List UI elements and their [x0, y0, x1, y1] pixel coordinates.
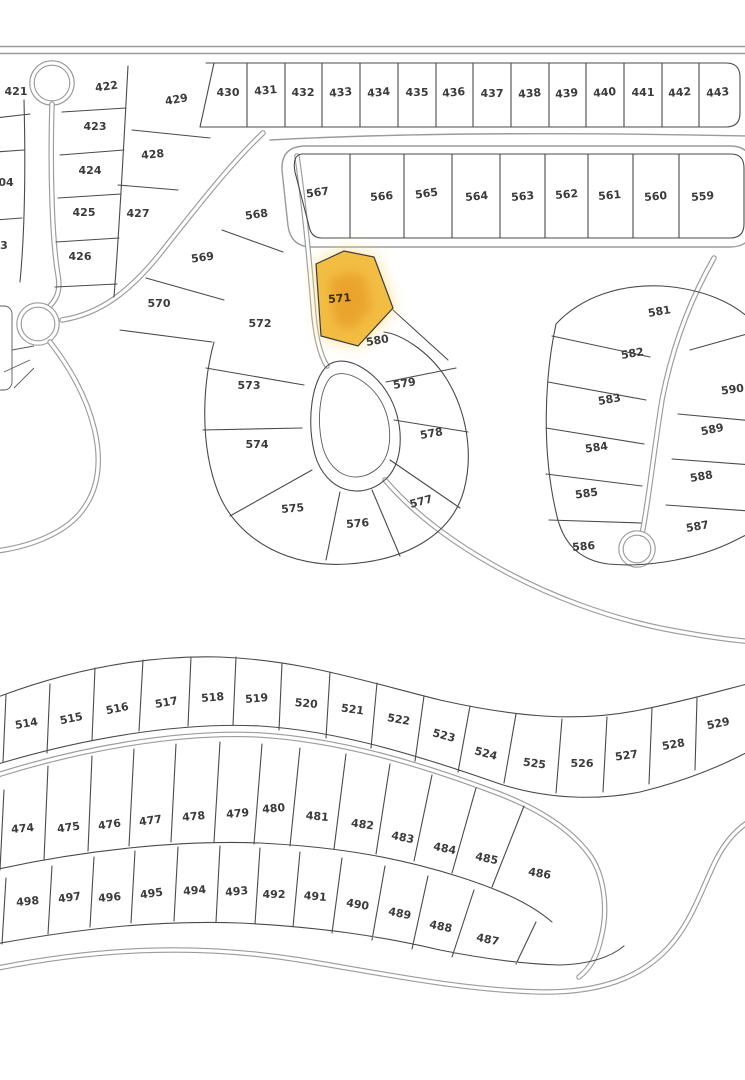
lot-label-525: 525: [522, 755, 547, 771]
lot-label-520: 520: [294, 696, 318, 711]
lot-label-560: 560: [644, 189, 668, 204]
lot-label-437: 437: [481, 87, 504, 100]
lot-label-431: 431: [254, 83, 278, 98]
lot-label-481: 481: [305, 809, 329, 824]
lot-label-559: 559: [691, 189, 715, 204]
lot-label-430: 430: [217, 86, 240, 99]
lot-label-527: 527: [614, 747, 639, 763]
lot-label-438: 438: [518, 86, 542, 101]
lot-label-497: 497: [57, 889, 82, 905]
lot-label-487: 487: [475, 931, 500, 948]
lot-label-514: 514: [14, 715, 39, 732]
lot-label-441: 441: [632, 86, 655, 99]
lot-label-581: 581: [647, 303, 672, 320]
lot-label-564: 564: [465, 189, 489, 204]
lot-label-567: 567: [305, 184, 330, 200]
subdivision-map: 4214224234244254264274284290434304314324…: [0, 0, 745, 1080]
lot-label-422: 422: [94, 78, 119, 94]
lot-label-566: 566: [370, 189, 394, 204]
lot-label-489: 489: [387, 905, 412, 922]
lot-label-583: 583: [597, 391, 622, 408]
lot-label-528: 528: [661, 736, 686, 753]
lot-label-590: 590: [720, 381, 745, 397]
lot-label-426: 426: [69, 250, 92, 263]
lot-label-585: 585: [574, 485, 599, 501]
lot-label-561: 561: [598, 188, 622, 203]
lot-label-529: 529: [706, 715, 731, 732]
lot-label-517: 517: [154, 694, 179, 711]
lot-label-496: 496: [98, 890, 122, 905]
lot-label-424: 424: [79, 164, 102, 177]
lot-label-521: 521: [340, 701, 365, 717]
lot-label-563: 563: [511, 189, 535, 204]
lot-label-494: 494: [183, 883, 207, 898]
lot-label-443: 443: [706, 85, 730, 100]
lot-label-484: 484: [432, 840, 458, 858]
lot-label-475: 475: [56, 819, 81, 835]
lot-label-568: 568: [244, 206, 269, 222]
lot-label-425: 425: [73, 206, 96, 219]
lot-label-479: 479: [226, 806, 250, 821]
lot-label-522: 522: [386, 711, 411, 728]
lot-label-442: 442: [668, 85, 692, 100]
lot-label-584: 584: [584, 439, 609, 455]
lot-label-490: 490: [345, 896, 370, 913]
lot-label-574: 574: [246, 438, 269, 451]
lot-label-573: 573: [238, 379, 261, 392]
lot-label-589: 589: [700, 421, 725, 438]
lot-label-483: 483: [390, 829, 415, 846]
lot-label-476: 476: [97, 816, 122, 832]
lot-label-478: 478: [182, 809, 206, 824]
lot-label-565: 565: [414, 185, 439, 201]
lot-label-523: 523: [431, 726, 457, 745]
lot-label-486: 486: [527, 865, 552, 882]
lot-label-435: 435: [406, 86, 429, 99]
lot-label-586: 586: [572, 539, 596, 554]
lot-label-582: 582: [620, 345, 645, 362]
lot-label-423: 423: [84, 120, 107, 133]
lot-label-495: 495: [139, 885, 164, 901]
lot-label-570: 570: [148, 297, 171, 310]
lot-label-575: 575: [281, 501, 305, 516]
lot-label-579: 579: [392, 375, 417, 392]
lot-label-577: 577: [408, 492, 434, 511]
lot-label-04: 04: [0, 176, 14, 189]
lot-label-429: 429: [164, 91, 189, 108]
lot-label-427: 427: [127, 207, 150, 220]
lot-label-571[interactable]: 571: [328, 291, 352, 306]
lot-label-432: 432: [292, 86, 315, 99]
lot-label-578: 578: [419, 425, 444, 442]
lot-label-440: 440: [593, 85, 617, 100]
lot-label-436: 436: [442, 85, 466, 100]
lot-label-588: 588: [689, 468, 714, 485]
lot-label-516: 516: [105, 700, 131, 718]
lot-label-569: 569: [190, 249, 215, 265]
lot-label-580: 580: [365, 332, 390, 349]
lot-label-482: 482: [350, 816, 375, 832]
lot-label-492: 492: [263, 888, 286, 901]
lot-label-576: 576: [346, 516, 370, 531]
lot-label-526: 526: [571, 757, 594, 770]
lot-label-477: 477: [138, 812, 163, 828]
lot-label-524: 524: [473, 744, 499, 763]
lot-label-515: 515: [59, 710, 84, 727]
lot-label-421: 421: [5, 85, 28, 98]
lot-label-480: 480: [262, 801, 286, 816]
lot-label-434: 434: [367, 85, 391, 100]
lot-label-488: 488: [428, 918, 453, 935]
lot-label-491: 491: [303, 889, 327, 904]
lot-label-485: 485: [474, 850, 499, 867]
lot-label-3: 3: [0, 239, 8, 252]
lot-label-587: 587: [685, 518, 710, 535]
lot-label-433: 433: [329, 85, 353, 100]
lot-label-562: 562: [555, 187, 579, 202]
lot-label-428: 428: [141, 147, 165, 162]
lot-label-439: 439: [555, 86, 579, 101]
lot-label-474: 474: [11, 821, 35, 836]
lot-label-498: 498: [16, 894, 40, 909]
lot-label-493: 493: [225, 884, 249, 899]
lot-label-519: 519: [245, 691, 269, 706]
lot-label-572: 572: [249, 317, 272, 330]
lot-label-518: 518: [201, 690, 225, 705]
